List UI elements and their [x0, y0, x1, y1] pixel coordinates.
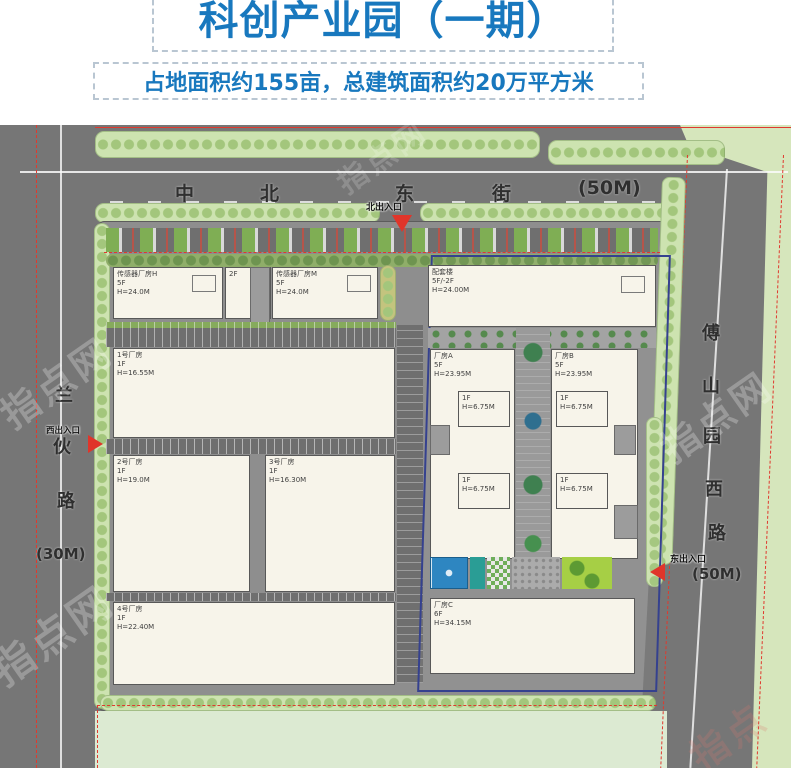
paved-plaza — [512, 557, 560, 589]
building-annex-label: 1F H=6.75M — [462, 476, 495, 494]
parking-strip-3 — [106, 593, 396, 601]
red-boundary-site-south — [97, 705, 657, 706]
building-sensor-m-label: 传感器厂房M 5F H=24.0M — [276, 270, 317, 298]
building-wing — [614, 505, 638, 539]
building-annex-a2: 1F H=6.75M — [458, 473, 510, 509]
building-factory-c-label: 厂房C 6F H=34.15M — [434, 601, 471, 629]
red-boundary-top — [95, 127, 791, 128]
roof-tag — [621, 276, 645, 293]
central-landscape-axis — [516, 328, 550, 573]
north-entrance-arrow-icon — [392, 215, 412, 232]
lawn-patch — [562, 557, 612, 589]
parking-strip-2 — [106, 439, 396, 454]
road-centerline-north — [20, 171, 788, 173]
north-road-width: (50M) — [578, 177, 641, 199]
green-field-south — [95, 711, 667, 768]
east-road-char: 路 — [708, 519, 726, 545]
building-annex-label: 1F H=6.75M — [560, 476, 593, 494]
site-plan-map: 传感器厂房H 5F H=24.0M 2F 传感器厂房M 5F H=24.0M 1… — [0, 125, 791, 768]
building-factory-1: 1号厂房 1F H=16.55M — [113, 348, 395, 438]
tree-column-west — [94, 223, 110, 709]
building-factory-3-label: 3号厂房 1F H=16.30M — [269, 458, 306, 486]
building-support: 配套楼 5F/-2F H=24.00M — [428, 265, 656, 327]
east-road-char: 傅 — [702, 319, 720, 345]
tree-row — [95, 203, 380, 223]
building-sensor-h: 传感器厂房H 5F H=24.0M — [113, 267, 223, 319]
building-support-label: 配套楼 5F/-2F H=24.00M — [432, 268, 469, 296]
building-sensor-h-label: 传感器厂房H 5F H=24.0M — [117, 270, 157, 298]
water-feature — [470, 557, 485, 589]
building-annex-b1: 1F H=6.75M — [556, 391, 608, 427]
building-2f-label: 2F — [229, 270, 237, 279]
east-road-char: 西 — [705, 475, 723, 501]
header: 科创产业园（一期） 占地面积约155亩，总建筑面积约20万平方米 — [0, 0, 791, 125]
tree-row — [548, 140, 725, 165]
north-entrance-label: 北出入口 — [366, 200, 402, 213]
green-edge-right — [752, 163, 791, 768]
building-sensor-m: 传感器厂房M 5F H=24.0M — [272, 267, 378, 319]
building-annex-label: 1F H=6.75M — [462, 394, 495, 412]
page-subtitle: 占地面积约155亩，总建筑面积约20万平方米 — [93, 62, 644, 100]
tree-row — [95, 131, 540, 158]
north-road-char: 街 — [492, 179, 511, 206]
west-road-char: 兰 — [55, 381, 73, 407]
building-annex-b2: 1F H=6.75M — [556, 473, 608, 509]
building-factory-a-label: 厂房A 5F H=23.95M — [434, 352, 471, 380]
east-road-char: 山 — [702, 372, 720, 398]
building-factory-3: 3号厂房 1F H=16.30M — [265, 455, 395, 592]
building-wing — [430, 425, 450, 455]
red-boundary-site-southwest — [97, 705, 98, 768]
west-road-char: 路 — [57, 487, 75, 513]
north-road-char: 北 — [260, 179, 279, 206]
roof-tag — [347, 275, 371, 292]
road-centerline-east — [689, 169, 728, 768]
basketball-court — [430, 557, 468, 589]
building-annex-a1: 1F H=6.75M — [458, 391, 510, 427]
building-factory-b-label: 厂房B 5F H=23.95M — [555, 352, 592, 380]
tree-row — [420, 203, 682, 223]
building-factory-c: 厂房C 6F H=34.15M — [430, 598, 635, 674]
building-factory-4: 4号厂房 1F H=22.40M — [113, 602, 395, 685]
tree-row-south — [100, 695, 656, 711]
building-wing — [614, 425, 636, 455]
building-factory-4-label: 4号厂房 1F H=22.40M — [117, 605, 154, 633]
red-boundary-site-north — [104, 252, 660, 253]
checker-plaza — [487, 557, 510, 589]
roof-tag — [192, 275, 216, 292]
page-title: 科创产业园（一期） — [152, 0, 614, 52]
building-factory-2-label: 2号厂房 1F H=19.0M — [117, 458, 150, 486]
north-road-char: 中 — [175, 179, 194, 206]
west-entrance-arrow-icon — [88, 435, 103, 453]
tree-patch — [380, 265, 396, 321]
building-factory-1-label: 1号厂房 1F H=16.55M — [117, 351, 154, 379]
east-entrance-label: 东出入口 — [670, 552, 706, 565]
west-road-width: (30M) — [36, 545, 86, 563]
parking-strip-1 — [106, 322, 396, 347]
red-boundary-west — [36, 125, 37, 768]
east-road-char: 园 — [703, 422, 721, 448]
east-road-width: (50M) — [692, 565, 742, 583]
west-road-char: 伙 — [53, 433, 71, 459]
building-factory-2: 2号厂房 1F H=19.0M — [113, 455, 250, 592]
building-annex-label: 1F H=6.75M — [560, 394, 593, 412]
east-entrance-arrow-icon — [650, 563, 665, 581]
west-entrance-label: 西出入口 — [46, 424, 80, 436]
parking-strip-north — [106, 228, 658, 252]
